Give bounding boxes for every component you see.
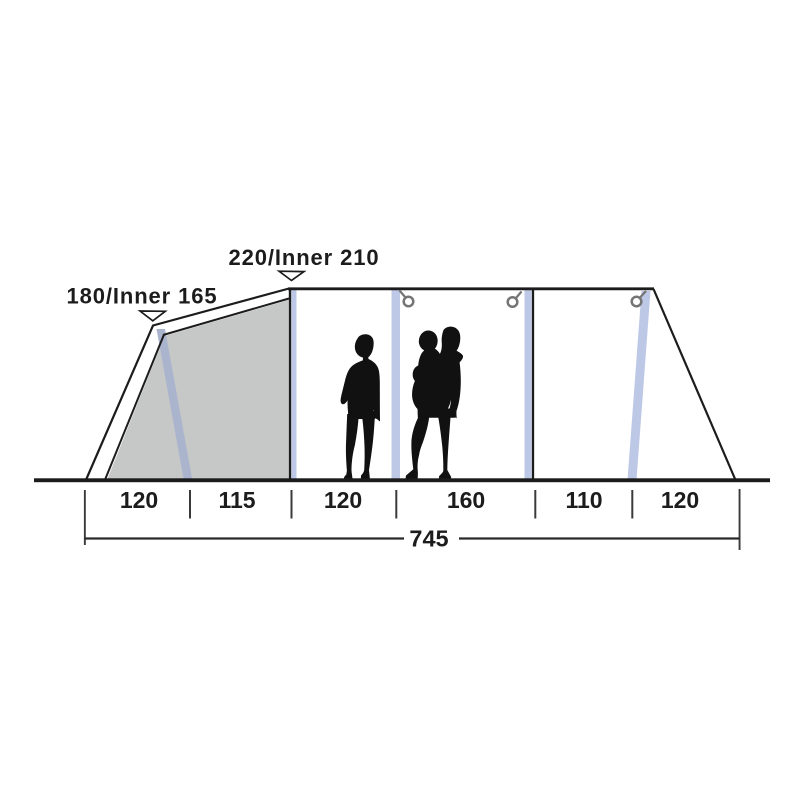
svg-text:120: 120 — [324, 487, 362, 513]
svg-text:160: 160 — [447, 487, 485, 513]
svg-text:120: 120 — [661, 487, 699, 513]
svg-text:180/Inner 165: 180/Inner 165 — [66, 284, 217, 309]
svg-text:120: 120 — [120, 487, 158, 513]
svg-text:745: 745 — [409, 526, 448, 552]
svg-text:115: 115 — [218, 487, 255, 513]
svg-text:220/Inner 210: 220/Inner 210 — [228, 245, 379, 270]
svg-text:110: 110 — [565, 487, 602, 513]
